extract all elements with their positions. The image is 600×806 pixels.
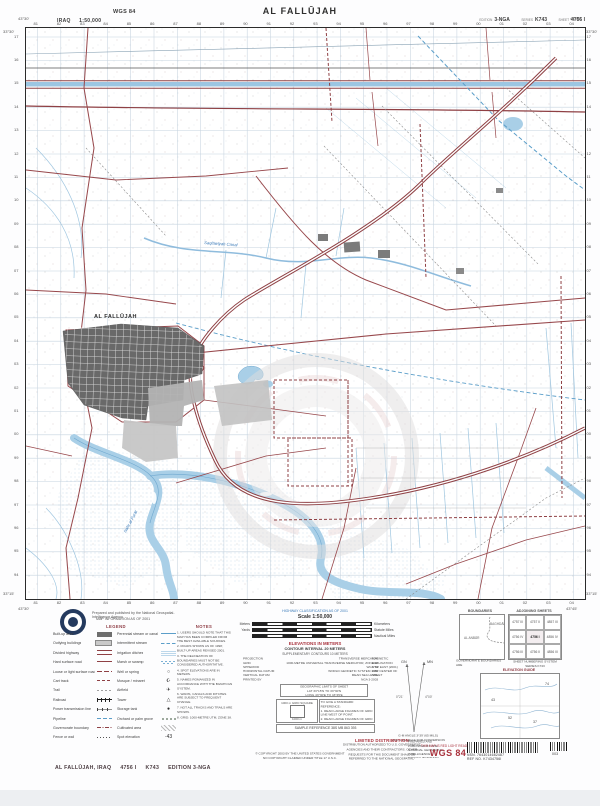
- scale-bar: [252, 622, 372, 626]
- legend-item-swatch: ✈: [161, 687, 176, 693]
- nsn-barcode: [467, 742, 539, 753]
- legend-item-swatch: [97, 725, 112, 731]
- easting-label-bottom: 99: [453, 600, 457, 605]
- legend-item-label: Outlying buildings: [53, 641, 81, 645]
- footer-name: AL FALLŪJAH, IRAQ: [55, 765, 111, 771]
- legend-item-label: Fence or wall: [53, 735, 74, 739]
- scale-bar-unit-right: Kilometers: [374, 622, 390, 626]
- datum-table: PROJECTIONTRANSVERSE MERCATORGRID1000-ME…: [243, 657, 378, 683]
- boundaries-caption: GOVERNORATE BOUNDARIES AREAPPROXIMATE: [456, 659, 506, 668]
- easting-label-bottom: 81: [34, 600, 38, 605]
- elevation-spot: 74: [545, 682, 549, 686]
- northing-label-right: 05: [587, 314, 591, 319]
- legend-item: Power transmission line: [53, 706, 112, 712]
- easting-label-top: 82: [57, 21, 61, 26]
- note-line: 7. NOT ALL TRACKS AND TRAILS ARE SHOWN.: [177, 706, 233, 714]
- northing-label-right: 03: [587, 361, 591, 366]
- easting-label-top: 88: [197, 21, 201, 26]
- grid-square-title: 1000 m GRID SQUARE: [277, 701, 317, 705]
- easting-label-top: 91: [267, 21, 271, 26]
- legend-item-label: Pipeline: [53, 717, 66, 721]
- boundary-right-label: BAGHDĀD: [490, 622, 504, 626]
- legend-item-swatch: [161, 650, 176, 656]
- adjoining-grid: 4757 III4757 II4857 III4756 IV4756 I4856…: [508, 614, 562, 660]
- legend: Built-up areaOutlying buildingsDivided h…: [53, 631, 176, 740]
- legend-item-label: Orchard or palm grove: [117, 717, 153, 721]
- legend-item-swatch: [97, 659, 112, 665]
- note-line: 4. SPOT ELEVATIONS ARE IN METERS.: [177, 669, 233, 677]
- northing-label-left: 05: [14, 314, 18, 319]
- scale-bar-unit-right: Statute Miles: [374, 628, 394, 632]
- easting-label-top: 93: [313, 21, 317, 26]
- easting-label-top: 92: [290, 21, 294, 26]
- easting-label-top: 87: [173, 21, 177, 26]
- legend-item-label: Mosque / minaret: [117, 679, 145, 683]
- declination-diagram: GN MN 0°21' 4°00': [394, 658, 440, 736]
- stock-barcode: [550, 742, 568, 751]
- legend-item: Tower△: [117, 697, 176, 703]
- map-place-label: AL FALLŪJAH: [94, 313, 137, 320]
- northing-label-right: 06: [587, 291, 591, 296]
- adjoining-sheet: 4757 III: [509, 615, 526, 630]
- easting-label-top: 81: [34, 21, 38, 26]
- easting-label-bottom: 98: [430, 600, 434, 605]
- adjoining-sheet: 4756 II: [526, 644, 543, 659]
- easting-label-bottom: 94: [336, 600, 340, 605]
- northing-label-left: 15: [14, 80, 18, 85]
- legend-item-label: Perennial stream or canal: [117, 632, 158, 636]
- easting-label-top: 04: [569, 21, 573, 26]
- northing-label-left: 11: [14, 174, 18, 179]
- footer-series: K743: [146, 765, 160, 771]
- legend-item: Pipeline: [53, 716, 112, 722]
- easting-label-top: 85: [127, 21, 131, 26]
- easting-label-bottom: 82: [57, 600, 61, 605]
- corner-lon: 43°30': [18, 606, 29, 611]
- boundaries-box: AL ANBĀR BAGHDĀD: [459, 614, 505, 660]
- adjoining-sheet: 4856 IV: [544, 630, 561, 645]
- northing-label-right: 95: [587, 548, 591, 553]
- northing-label-right: 00: [587, 431, 591, 436]
- legend-item-swatch: ●: [161, 706, 176, 712]
- copyright-block: © COPYRIGHT 2003 BY THE UNITED STATES GO…: [250, 752, 350, 762]
- legend-item-swatch: [97, 687, 112, 693]
- easting-label-top: 00: [476, 21, 480, 26]
- easting-label-top: 95: [360, 21, 364, 26]
- notes-header: NOTES: [176, 624, 232, 629]
- legend-item-label: Cultivated area: [117, 726, 141, 730]
- legend-item-swatch: [97, 706, 112, 712]
- northing-label-right: 17: [587, 34, 591, 39]
- legend-item-swatch: ○: [161, 669, 176, 675]
- northing-label-right: 08: [587, 244, 591, 249]
- scale-bar-unit-left: Meters: [226, 622, 250, 626]
- easting-label-top: 89: [220, 21, 224, 26]
- nsn-caption-line: REF NO. K7434756I: [467, 757, 504, 761]
- easting-label-bottom: 01: [500, 600, 504, 605]
- map-neatline: AL FALLŪJAHNahr al FurātSaqlāwīyah Canal: [25, 27, 586, 600]
- legend-item-swatch: [97, 697, 112, 703]
- northing-label-right: 02: [587, 385, 591, 390]
- note-line: 2. ROADS SHOWN AS OF 1998; BUILT-UP AREA…: [177, 645, 233, 653]
- legend-column: Built-up areaOutlying buildingsDivided h…: [53, 631, 112, 740]
- legend-item-swatch: [161, 640, 176, 646]
- legend-item-label: Airfield: [117, 688, 128, 692]
- adjoining-current-sheet: 4756 I: [526, 630, 543, 645]
- northing-label-left: 08: [14, 244, 18, 249]
- geo-limits-box: GEOGRAPHIC LIMITS OF SHEETLAT 33°15'N TO…: [280, 684, 368, 697]
- easting-label-bottom: 96: [383, 600, 387, 605]
- legend-header: LEGEND: [55, 624, 177, 629]
- legend-item-swatch: ☪: [161, 678, 176, 684]
- easting-label-bottom: 91: [267, 600, 271, 605]
- legend-item-label: Tower: [117, 698, 127, 702]
- note-line: 8. GRID: 1000-METRE UTM, ZONE 38.: [177, 716, 233, 720]
- easting-label-bottom: 02: [523, 600, 527, 605]
- northing-label-right: 14: [587, 104, 591, 109]
- northing-label-right: 15: [587, 80, 591, 85]
- map-sheet-page: IRAQ 1:50,000 WGS 84 AL FALLŪJAH EDITION…: [0, 0, 600, 806]
- legend-item-label: Railroad: [53, 698, 66, 702]
- legend-item-label: Governorate boundary: [53, 726, 89, 730]
- map-svg: AL FALLŪJAHNahr al FurātSaqlāwīyah Canal: [26, 28, 585, 599]
- adjoining-sheet: 4856 III: [544, 644, 561, 659]
- sheet-label: SHEET: [558, 18, 569, 22]
- northing-label-left: 06: [14, 291, 18, 296]
- northing-label-left: 13: [14, 127, 18, 132]
- scale-note: HIGHWAY CLASSIFICATION AS OF 2001: [230, 609, 400, 613]
- map-info-line: MAP INFORMATION AS OF 2001: [96, 617, 186, 621]
- legend-item-label: Spot elevation: [117, 735, 140, 739]
- easting-label-bottom: 97: [406, 600, 410, 605]
- note-line: 5. NAMES ROMANIZED IN ACCORDANCE WITH TH…: [177, 678, 233, 691]
- northing-label-right: 10: [587, 197, 591, 202]
- datum-badge: WGS 84: [113, 9, 136, 15]
- sample-reference-box: SAMPLE REFERENCE 38S MB 863 393: [276, 724, 375, 733]
- northing-label-right: 04: [587, 338, 591, 343]
- legend-item-swatch: [97, 650, 112, 655]
- legend-item-swatch: ·43: [161, 734, 176, 740]
- legend-item-label: Loose or light surface road: [53, 670, 95, 674]
- declination-value: 4°00': [425, 695, 433, 699]
- legend-item: Hard surface road: [53, 659, 112, 665]
- northing-label-left: 95: [14, 548, 18, 553]
- legend-item: Outlying buildings: [53, 640, 112, 646]
- northing-label-right: 97: [587, 502, 591, 507]
- footer-sheet: 4756 I: [120, 765, 136, 771]
- page-edge: [0, 790, 600, 806]
- easting-label-top: 84: [103, 21, 107, 26]
- easting-label-top: 98: [430, 21, 434, 26]
- legend-item-label: Well or spring: [117, 670, 139, 674]
- scale-bar-row: Nautical Miles: [226, 633, 395, 639]
- grid-reference-box: TO GIVE A STANDARD REFERENCE:1. READ LAR…: [319, 699, 375, 723]
- corner-lon: 43°45': [566, 606, 577, 611]
- legend-item-label: Cart track: [53, 679, 69, 683]
- grid-convergence-value: 0°21': [396, 695, 404, 699]
- northing-label-right: 11: [587, 174, 591, 179]
- northing-label-right: 16: [587, 57, 591, 62]
- legend-item-label: Trail: [53, 688, 60, 692]
- northing-label-left: 03: [14, 361, 18, 366]
- easting-label-bottom: 88: [197, 600, 201, 605]
- grid-square-side: 1000 m: [277, 717, 317, 721]
- easting-label-top: 94: [336, 21, 340, 26]
- elevation-spot: 43: [491, 698, 495, 702]
- legend-item: Trail: [53, 687, 112, 693]
- magnetic-north-label: MN: [427, 660, 433, 664]
- northing-label-left: 97: [14, 502, 18, 507]
- northing-label-right: 09: [587, 221, 591, 226]
- supplementary-line: SUPPLEMENTARY CONTOURS 10 METERS: [230, 652, 400, 656]
- contour-line: CONTOUR INTERVAL 20 METERS: [230, 647, 400, 651]
- legend-item: Governorate boundary: [53, 725, 112, 731]
- legend-item: Railroad: [53, 697, 112, 703]
- legend-item-label: Power transmission line: [53, 707, 91, 711]
- northing-label-right: 07: [587, 268, 591, 273]
- easting-label-bottom: 93: [313, 600, 317, 605]
- legend-item: Orchard or palm grove: [117, 716, 176, 722]
- legend-item: Marsh or swamp: [117, 659, 176, 665]
- northing-label-left: 04: [14, 338, 18, 343]
- legend-item: Divided highway: [53, 650, 112, 656]
- easting-label-bottom: 89: [220, 600, 224, 605]
- easting-label-top: 86: [150, 21, 154, 26]
- northing-label-right: 98: [587, 478, 591, 483]
- legend-item-swatch: [97, 678, 112, 684]
- legend-item-label: Hard surface road: [53, 660, 82, 664]
- northing-label-left: 01: [14, 408, 18, 413]
- legend-item: Fence or wall: [53, 734, 112, 740]
- northing-label-left: 94: [14, 572, 18, 577]
- northing-label-right: 13: [587, 127, 591, 132]
- northing-label-left: 02: [14, 385, 18, 390]
- easting-label-bottom: 03: [546, 600, 550, 605]
- northing-label-right: 12: [587, 151, 591, 156]
- easting-label-bottom: 87: [173, 600, 177, 605]
- edition-label: EDITION: [479, 18, 492, 22]
- legend-item-swatch: △: [161, 697, 176, 703]
- easting-label-bottom: 86: [150, 600, 154, 605]
- legend-item: Built-up area: [53, 631, 112, 637]
- legend-item-swatch: [161, 725, 176, 731]
- northing-label-left: 16: [14, 57, 18, 62]
- legend-column: Perennial stream or canalIntermittent st…: [117, 631, 176, 740]
- northing-label-left: 96: [14, 525, 18, 530]
- elevations-title: ELEVATIONS IN METERS: [230, 641, 400, 646]
- legend-item: Perennial stream or canal: [117, 631, 176, 637]
- stock-barcode-caption: 003: [552, 752, 558, 756]
- datum-value: NGA 3-2003: [361, 678, 378, 682]
- legend-item-swatch: [161, 631, 176, 637]
- northing-label-right: 94: [587, 572, 591, 577]
- easting-label-bottom: 95: [360, 600, 364, 605]
- boundary-left-label: AL ANBĀR: [464, 636, 480, 640]
- datum-row: PRINTED BYNGA 3-2003: [243, 678, 378, 682]
- legend-item: Cart track: [53, 678, 112, 684]
- corner-lat: 33°15': [586, 591, 597, 596]
- boundaries-header: BOUNDARIES: [456, 609, 504, 613]
- note-line: 3. THE DELINEATION OF BOUNDARIES MUST NO…: [177, 655, 233, 668]
- corner-lon: 43°30': [18, 16, 29, 21]
- datum-label: PRINTED BY: [243, 678, 262, 682]
- note-line: 6. WADIS, CANALS AND DITCHES ARE SUBJECT…: [177, 692, 233, 705]
- sheet-title: AL FALLŪJAH: [200, 6, 400, 16]
- datum-value: 1000-METRE UNIVERSAL TRANSVERSE MERCATOR…: [286, 661, 378, 665]
- elevation-spot: 52: [508, 716, 512, 720]
- northing-label-left: 99: [14, 455, 18, 460]
- legend-item-label: Irrigation ditches: [117, 651, 143, 655]
- sample-reference-line: SAMPLE REFERENCE 38S MB 863 393: [277, 725, 374, 732]
- corner-lat: 33°15': [3, 591, 14, 596]
- scale-bar: [252, 628, 372, 632]
- easting-label-top: 02: [523, 21, 527, 26]
- adjoining-sheet: 4756 III: [509, 644, 526, 659]
- legend-item: Intermittent stream: [117, 640, 176, 646]
- legend-item-label: Intermittent stream: [117, 641, 147, 645]
- corner-lat: 33°30': [586, 29, 597, 34]
- legend-item-swatch: [95, 640, 112, 646]
- easting-label-bottom: 85: [127, 600, 131, 605]
- northing-label-left: 12: [14, 151, 18, 156]
- elevation-spot: 37: [533, 720, 537, 724]
- adjoining-header: ADJOINING SHEETS: [506, 609, 562, 613]
- northing-label-left: 14: [14, 104, 18, 109]
- easting-label-bottom: 00: [476, 600, 480, 605]
- legend-item-swatch: [97, 716, 112, 722]
- adjoining-sheet: 4757 II: [526, 615, 543, 630]
- legend-item: Airfield✈: [117, 687, 176, 693]
- legend-item-swatch: [161, 659, 176, 665]
- nsn-barcode-captions: NSN. 7643014682487REF NO. K7434756I: [467, 753, 504, 761]
- easting-label-top: 99: [453, 21, 457, 26]
- scale-title: Scale 1:50,000: [230, 614, 400, 620]
- legend-item-swatch: [97, 632, 112, 637]
- easting-label-bottom: 92: [290, 600, 294, 605]
- easting-label-bottom: 04: [569, 600, 573, 605]
- easting-label-bottom: 90: [243, 600, 247, 605]
- adjoining-sheet: 4857 III: [544, 615, 561, 630]
- elevation-guide-box: 74435237: [480, 673, 560, 739]
- northing-label-left: 10: [14, 197, 18, 202]
- easting-label-bottom: 83: [80, 600, 84, 605]
- legend-item-label: Built-up area: [53, 632, 73, 636]
- footer-edition: EDITION 3-NGA: [168, 765, 211, 771]
- easting-label-top: 90: [243, 21, 247, 26]
- northing-label-left: 17: [14, 34, 18, 39]
- legend-item-label: Storage tank: [117, 707, 137, 711]
- easting-label-top: 03: [546, 21, 550, 26]
- legend-item: Loose or light surface road: [53, 669, 112, 675]
- legend-item: Cultivated area: [117, 725, 176, 731]
- legend-item-label: Marsh or swamp: [117, 660, 144, 664]
- elevation-guide-header: ELEVATION GUIDE: [478, 668, 560, 672]
- legend-item-label: Divided highway: [53, 651, 79, 655]
- scale-bar-unit-left: Yards: [226, 628, 250, 632]
- northing-label-left: 07: [14, 268, 18, 273]
- scale-bar: [252, 634, 372, 638]
- easting-label-top: 97: [406, 21, 410, 26]
- legend-item: Well or spring○: [117, 669, 176, 675]
- corner-lat: 33°30': [3, 29, 14, 34]
- grid-north-label: GN: [401, 660, 407, 664]
- corner-lon: 43°45': [570, 16, 581, 21]
- note-line: 1. USERS SHOULD NOTE THAT THIS MAP HAS B…: [177, 631, 233, 644]
- scale-bar-unit-right: Nautical Miles: [374, 634, 395, 638]
- northing-label-left: 09: [14, 221, 18, 226]
- easting-label-top: 01: [500, 21, 504, 26]
- easting-label-top: 83: [80, 21, 84, 26]
- northing-label-right: 99: [587, 455, 591, 460]
- legend-item: Spot elevation·43: [117, 734, 176, 740]
- footer-id-line: AL FALLŪJAH, IRAQ4756 IK743EDITION 3-NGA: [55, 765, 220, 771]
- northing-label-left: 00: [14, 431, 18, 436]
- easting-label-top: 96: [383, 21, 387, 26]
- legend-item-swatch: [97, 669, 112, 675]
- northing-label-right: 01: [587, 408, 591, 413]
- easting-label-bottom: 84: [103, 600, 107, 605]
- legend-item: Storage tank●: [117, 706, 176, 712]
- notes-block: 1. USERS SHOULD NOTE THAT THIS MAP HAS B…: [177, 631, 233, 751]
- adjoining-sheet: 4756 IV: [509, 630, 526, 645]
- legend-item: Mosque / minaret☪: [117, 678, 176, 684]
- legend-item: Irrigation ditches: [117, 650, 176, 656]
- legend-item-swatch: [161, 716, 176, 722]
- northing-label-left: 98: [14, 478, 18, 483]
- grid-square-box: 1000 m GRID SQUARE 1000 m: [276, 699, 318, 723]
- northing-label-right: 96: [587, 525, 591, 530]
- legend-item-swatch: [97, 734, 112, 740]
- scale-bars: MetersKilometersYardsStatute MilesNautic…: [226, 621, 395, 639]
